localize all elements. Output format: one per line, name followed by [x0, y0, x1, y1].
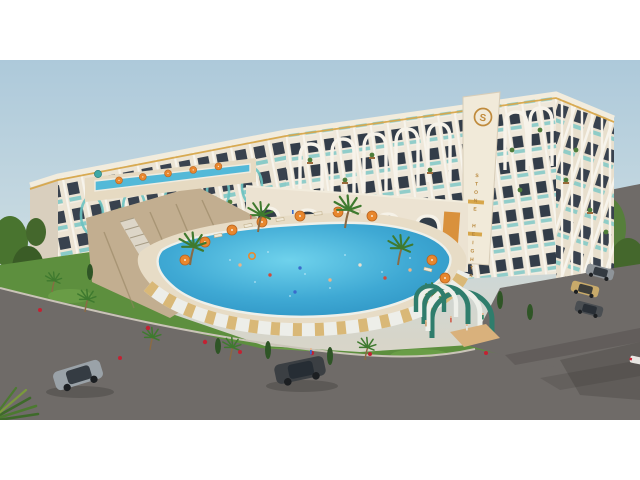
- letterbox-top: [0, 0, 640, 60]
- teal-umbrella: [94, 170, 101, 177]
- letterbox-bottom: [0, 420, 640, 480]
- architectural-render: S: [0, 60, 640, 420]
- building-right-wing: [556, 94, 614, 292]
- render-canvas: S: [0, 0, 640, 480]
